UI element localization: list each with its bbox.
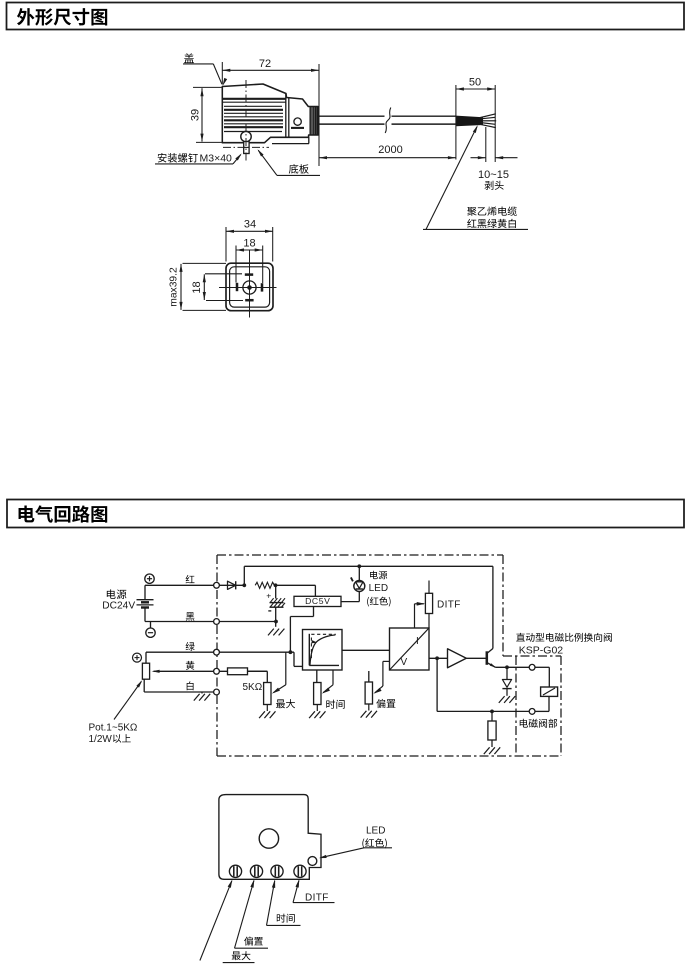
svg-text:LED: LED <box>369 583 388 594</box>
svg-text:KSP-G02: KSP-G02 <box>519 645 564 657</box>
svg-text:1/2W: 1/2W <box>89 734 113 745</box>
svg-text:39: 39 <box>190 109 202 121</box>
svg-text:34: 34 <box>244 219 256 231</box>
svg-text:18: 18 <box>243 238 255 250</box>
svg-text:DITF: DITF <box>437 600 461 611</box>
svg-text:5KΩ: 5KΩ <box>243 682 263 693</box>
svg-text:DC5V: DC5V <box>305 596 330 606</box>
svg-text:2000: 2000 <box>378 144 402 156</box>
svg-text:72: 72 <box>259 58 271 70</box>
svg-text:DITF: DITF <box>305 892 329 903</box>
svg-text:DC24V: DC24V <box>102 600 135 611</box>
svg-text:I: I <box>416 636 419 647</box>
svg-text:Pot.1~5KΩ: Pot.1~5KΩ <box>89 723 138 734</box>
svg-text:+: + <box>266 590 271 600</box>
svg-text:LED: LED <box>366 826 385 837</box>
svg-text:M3×40: M3×40 <box>200 153 233 165</box>
svg-text:V: V <box>401 657 408 668</box>
svg-text:50: 50 <box>469 77 481 89</box>
svg-text:10~15: 10~15 <box>478 169 509 181</box>
svg-text:18: 18 <box>191 281 203 293</box>
svg-text:max39.2: max39.2 <box>169 267 180 307</box>
